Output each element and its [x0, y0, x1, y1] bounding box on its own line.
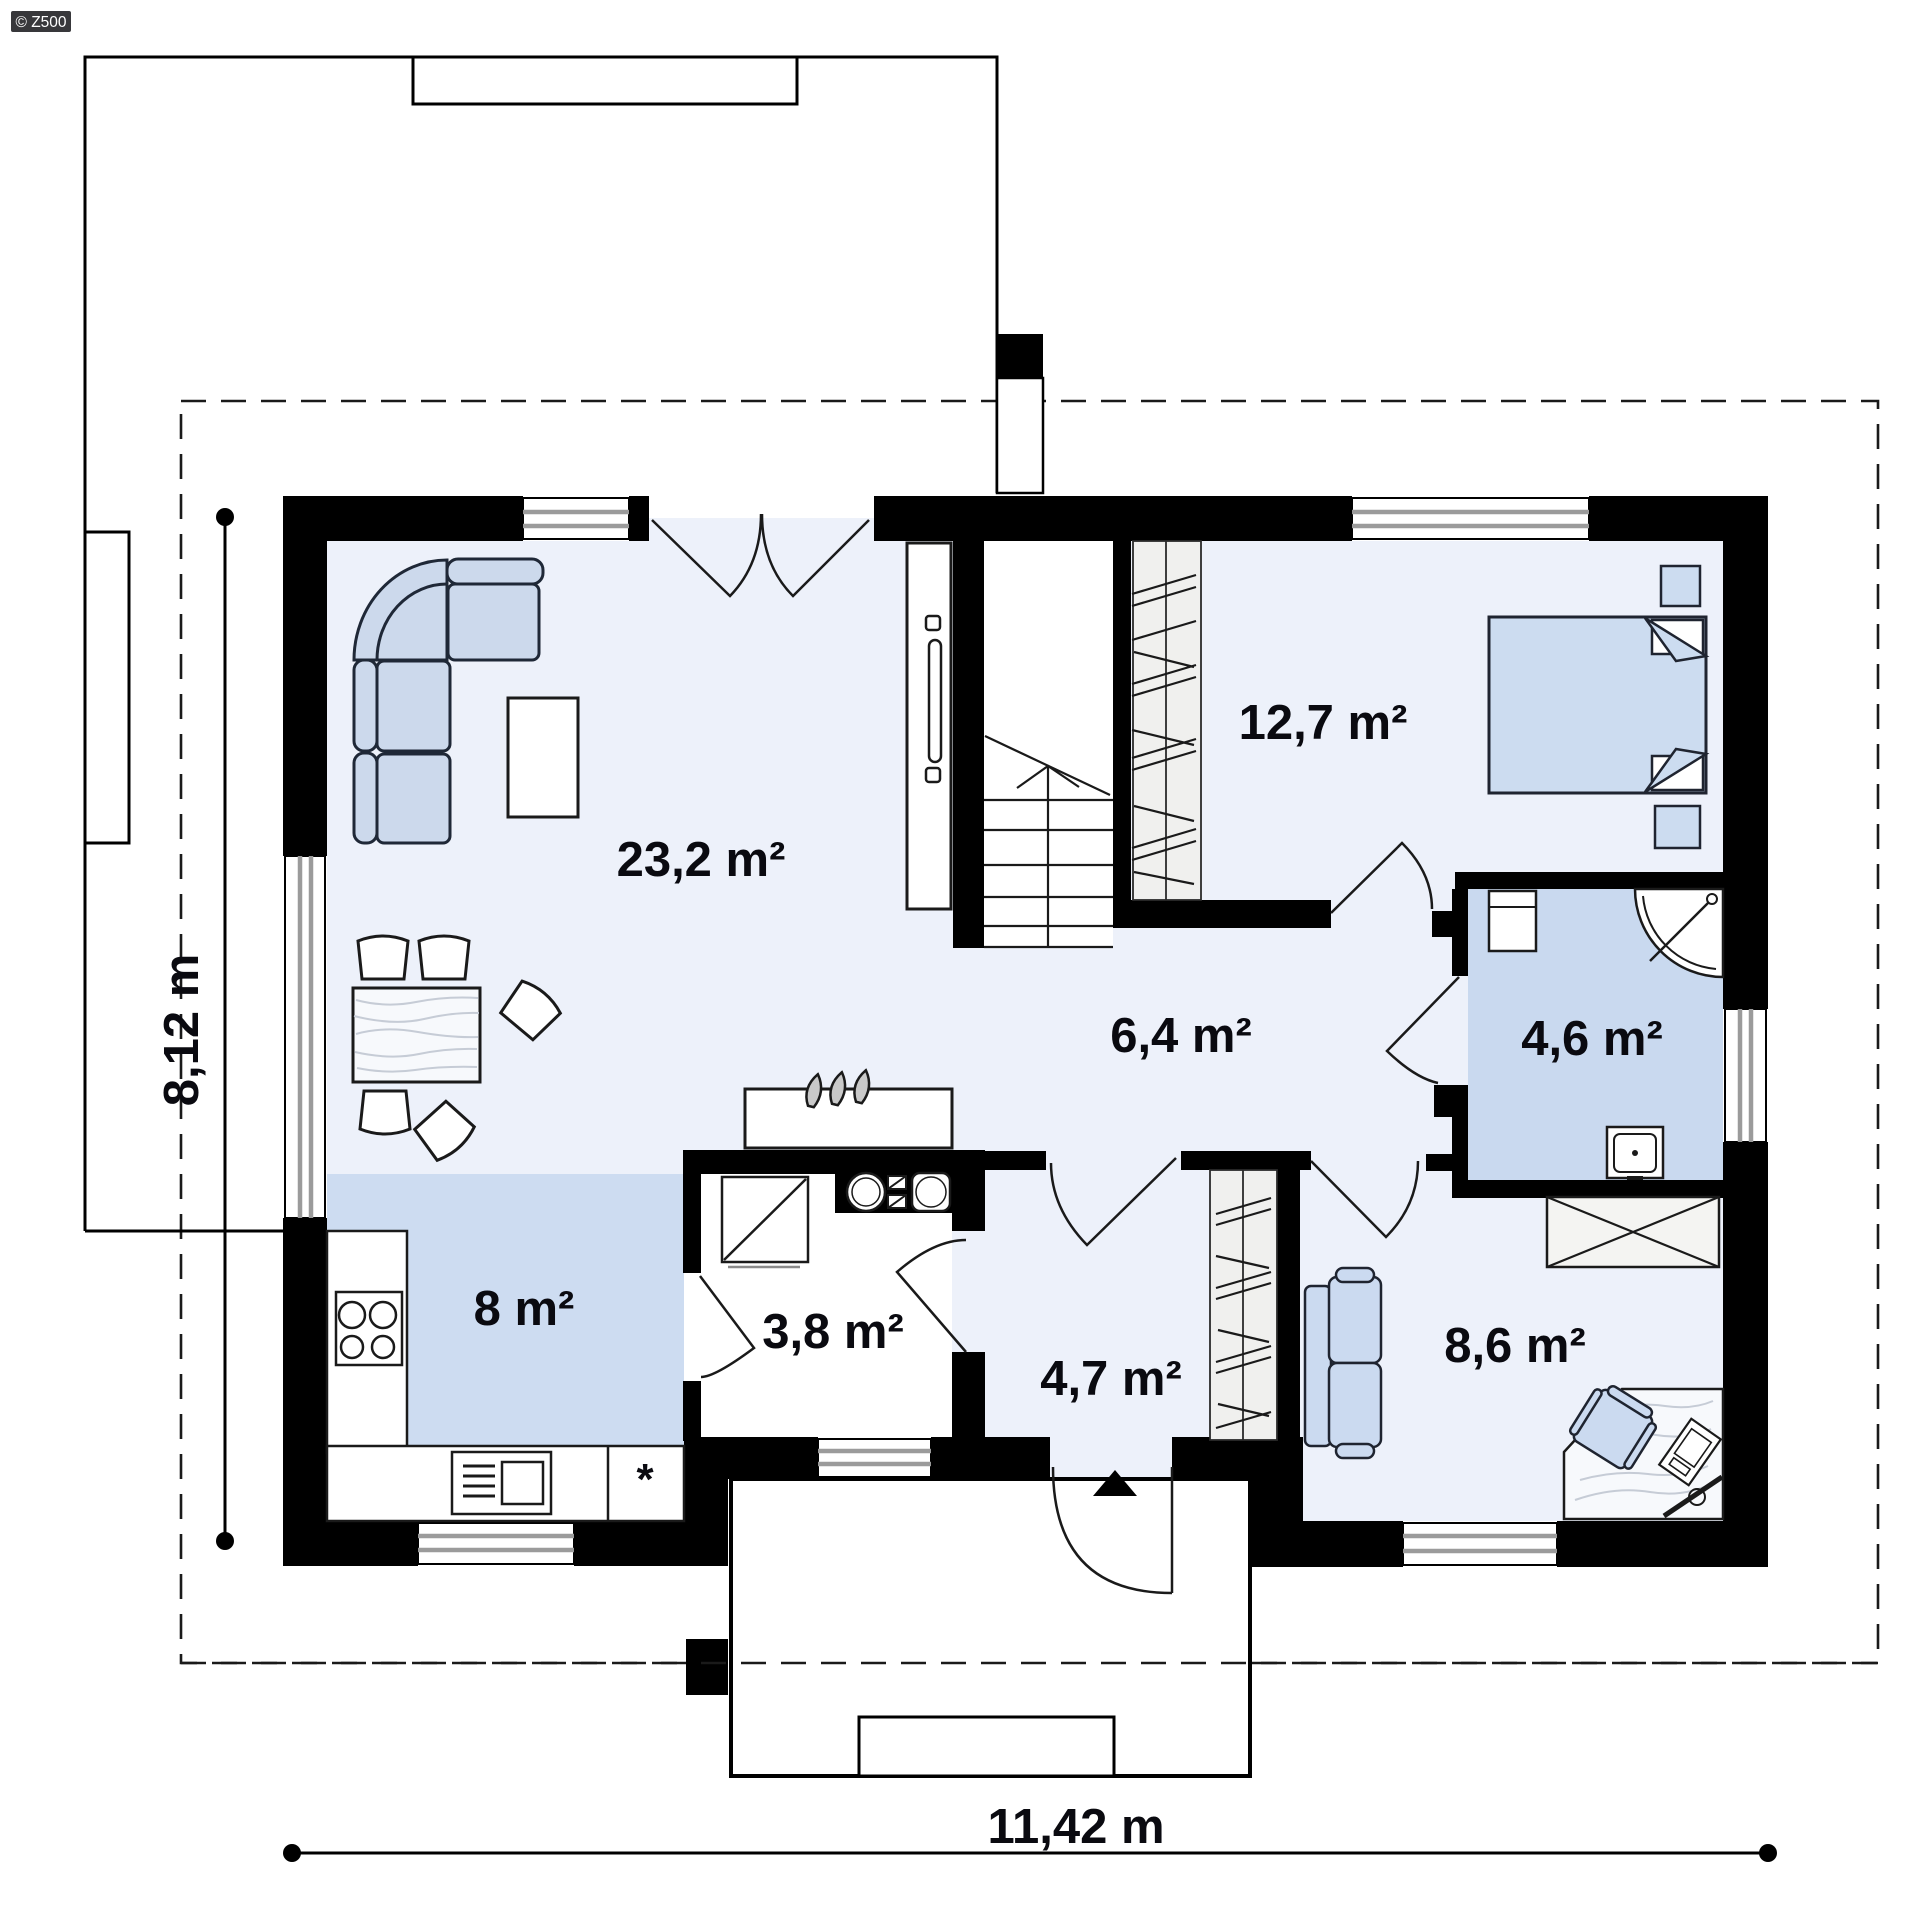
- svg-text:6,4 m²: 6,4 m²: [1110, 1009, 1252, 1063]
- svg-text:8,6 m²: 8,6 m²: [1444, 1319, 1586, 1373]
- svg-text:© Z500: © Z500: [15, 14, 66, 31]
- svg-text:11,42 m: 11,42 m: [987, 1800, 1164, 1854]
- svg-text:3,8 m²: 3,8 m²: [762, 1305, 904, 1359]
- svg-text:12,7 m²: 12,7 m²: [1239, 696, 1408, 750]
- svg-text:8,12 m: 8,12 m: [155, 954, 209, 1107]
- svg-text:*: *: [636, 1455, 654, 1504]
- svg-text:8 m²: 8 m²: [474, 1282, 575, 1336]
- svg-text:23,2 m²: 23,2 m²: [617, 833, 786, 887]
- svg-text:4,6 m²: 4,6 m²: [1521, 1012, 1663, 1066]
- svg-text:4,7 m²: 4,7 m²: [1040, 1352, 1182, 1406]
